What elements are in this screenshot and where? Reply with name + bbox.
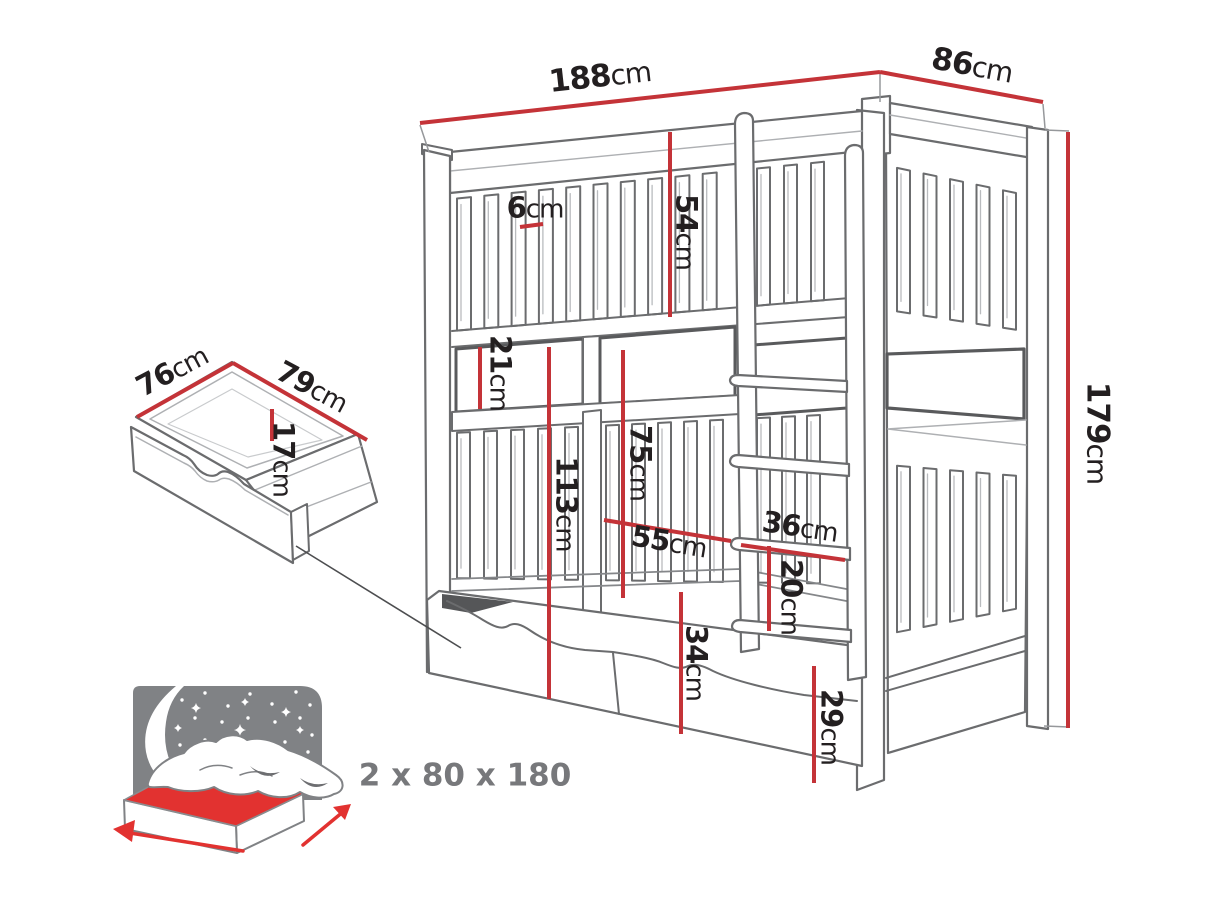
bed-slat [621,181,635,317]
dim-label-drawer-height: 17cm [269,421,298,497]
bed-slat [566,186,580,321]
bed-slat [897,168,910,314]
bed-slat [924,174,937,318]
bed-slat [924,468,937,627]
bed-slat [782,416,795,583]
end-near-post [1027,127,1048,729]
bed-slat [950,179,963,322]
dim-label-lower-guard: 75cm [626,425,655,501]
bed-end-panel [862,96,1048,753]
dim-label-upper-guard: 54cm [672,194,701,270]
bed-slat [1003,475,1016,612]
dim-label-rung-spacing: 20cm [777,559,806,635]
dim-label-under-upper: 113cm [552,456,581,551]
bed-slat [594,183,608,319]
bed-slat [811,162,824,301]
dimension-diagram: 188cm 86cm 179cm 6cm 54cm 21cm 113cm 75c… [0,0,1214,911]
bed-slat [977,185,990,326]
dim-label-base-height: 29cm [817,689,846,765]
bed-slat [757,167,770,306]
dim-label-bunk-gap: 21cm [486,335,515,411]
length-arrow-icon [303,804,351,845]
bed-slat [710,420,723,582]
bed-slat [703,173,717,311]
bunk-gap-opening-left [456,339,583,412]
mattress-size-label: 2 x 80 x 180 [359,761,572,792]
ladder-right-rail [845,145,866,680]
upper-guard-slats-right [757,162,824,306]
bed-slat [457,197,471,331]
end-side-opening [887,349,1024,419]
bed-slat [977,473,990,617]
bed-slat [511,430,524,580]
bed-slat [484,431,497,579]
bed-slat [1003,190,1016,329]
gap-divider-post [583,336,600,406]
bed-slat [784,165,797,304]
dim-label-total-height: 179cm [1082,382,1113,484]
bed-slat [950,470,963,622]
dim-label-drawer-front: 34cm [682,625,711,701]
bed-slat [648,178,662,315]
dim-label-slat-gap: 6cm [507,194,564,223]
bed-slat [484,194,498,328]
bed-slat [606,425,619,581]
bunk-gap-opening-mid [600,327,735,404]
bed-slat [457,432,470,578]
mattress-icon [113,686,351,853]
bed-slat [897,466,910,632]
diagram-artwork [0,0,1214,911]
